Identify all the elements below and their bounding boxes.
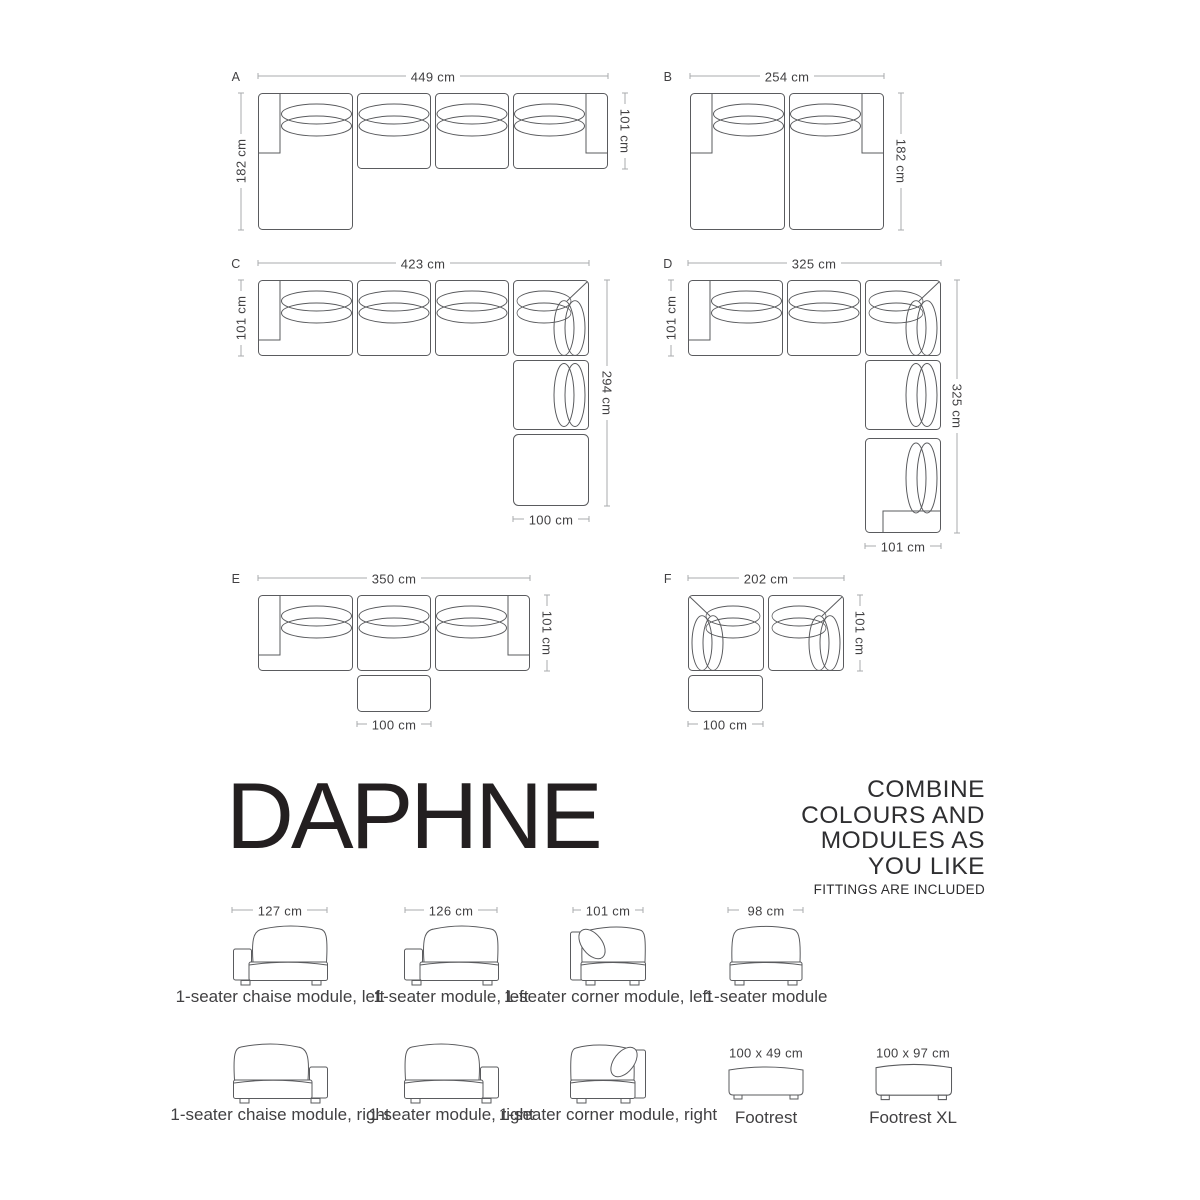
dim-e-width: 350 cm [258,571,530,587]
dim-c-left: 101 cm [234,280,249,356]
sofa-module [259,281,353,356]
product-title: DAPHNE [226,769,600,863]
dim-footrest-xl: 100 x 97 cm [873,1045,953,1061]
config-f-letter: F [664,572,672,586]
module-drawing [405,1044,499,1103]
svg-text:98 cm: 98 cm [748,904,785,919]
svg-text:101 cm: 101 cm [881,540,925,555]
sofa-module [436,281,509,356]
dim-c-width: 423 cm [258,256,589,272]
svg-text:126 cm: 126 cm [429,904,473,919]
sofa-module [436,94,509,169]
footrest-top-view [358,676,431,712]
svg-text:100 cm: 100 cm [372,718,416,733]
module-thumbnails-row-2: 100 x 49 cm 100 x 97 cm [234,1042,954,1103]
dim-module-2: 126 cm [405,903,497,919]
svg-text:101 cm: 101 cm [234,296,249,340]
configuration-d: D 325 cm 101 cm 325 cm 1 [663,256,964,555]
module-drawing [876,1064,951,1099]
dim-e-bottom: 100 cm [357,717,431,733]
sofa-module [358,94,431,169]
svg-text:182 cm: 182 cm [894,139,909,183]
dim-d-left: 101 cm [664,280,679,356]
spec-drawings: A 449 cm 182 cm 101 cm B [0,0,1200,1200]
dim-module-3: 101 cm [573,903,643,919]
sofa-module [790,94,884,230]
sofa-module [788,281,861,356]
svg-text:101 cm: 101 cm [853,611,868,655]
dim-d-bottom: 101 cm [865,539,941,555]
svg-text:101 cm: 101 cm [664,296,679,340]
config-a-letter: A [232,70,241,84]
module-drawing [571,1042,646,1103]
tagline-line: YOU LIKE [801,854,985,880]
tagline-line: COLOURS AND [801,803,985,829]
module-caption: 1-seater module [656,987,876,1007]
svg-text:101 cm: 101 cm [618,109,633,153]
svg-text:325 cm: 325 cm [792,257,836,272]
svg-text:325 cm: 325 cm [950,384,965,428]
configuration-e: E 350 cm 101 cm 100 cm [232,571,555,733]
dim-module-4: 98 cm [728,903,803,919]
svg-text:101 cm: 101 cm [540,611,555,655]
dim-e-right: 101 cm [540,595,555,671]
sofa-module [436,596,530,671]
dim-c-bottom: 100 cm [513,512,589,528]
dim-module-1: 127 cm [232,903,327,919]
configuration-f: F 202 cm 101 cm 100 cm [664,571,868,733]
tagline-line: MODULES AS [801,828,985,854]
svg-text:100 cm: 100 cm [529,513,573,528]
dim-b-width: 254 cm [690,69,884,85]
dim-b-right: 182 cm [894,93,909,230]
sofa-module [358,596,431,671]
svg-text:423 cm: 423 cm [401,257,445,272]
module-drawing [729,1067,803,1099]
sofa-module [866,281,941,356]
footrest-top-view [514,435,589,506]
svg-text:254 cm: 254 cm [765,70,809,85]
sofa-module [866,439,941,533]
dim-f-width: 202 cm [688,571,844,587]
dim-d-width: 325 cm [688,256,941,272]
dim-f-right: 101 cm [853,595,868,671]
dim-c-right: 294 cm [600,280,615,506]
module-thumbnails-row-1: 127 cm 126 cm 101 cm 98 cm [232,903,803,986]
module-drawing [234,926,328,985]
sofa-module [514,361,589,430]
module-drawing [730,926,802,985]
tagline-line: COMBINE [801,777,985,803]
module-drawing [405,926,499,985]
config-d-letter: D [663,257,673,271]
config-b-letter: B [664,70,673,84]
dim-a-right: 101 cm [618,93,633,169]
sofa-module [514,94,608,169]
configuration-a: A 449 cm 182 cm 101 cm [232,69,633,231]
dim-footrest: 100 x 49 cm [726,1045,806,1061]
svg-text:100 x 97 cm: 100 x 97 cm [876,1046,950,1061]
svg-text:101 cm: 101 cm [586,904,630,919]
svg-text:294 cm: 294 cm [600,371,615,415]
sofa-module [691,94,785,230]
config-c-letter: C [231,257,241,271]
tagline: COMBINE COLOURS AND MODULES AS YOU LIKE [801,777,985,879]
footrest-top-view [689,676,763,712]
sofa-module [866,361,941,430]
sofa-module [259,94,353,230]
sofa-module [769,596,844,671]
configuration-c: C 423 cm 101 cm 294 cm [231,256,614,528]
sofa-module [514,281,589,356]
sofa-module [689,596,764,671]
svg-text:449 cm: 449 cm [411,70,455,85]
module-drawing [571,924,646,985]
svg-text:100 x 49 cm: 100 x 49 cm [729,1046,803,1061]
configuration-b: B 254 cm 182 cm [664,69,909,231]
sofa-module [358,281,431,356]
config-e-letter: E [232,572,241,586]
page: A 449 cm 182 cm 101 cm B [0,0,1200,1200]
svg-text:100 cm: 100 cm [703,718,747,733]
sofa-module [259,596,353,671]
module-caption: Footrest XL [803,1108,1023,1128]
svg-text:182 cm: 182 cm [234,139,249,183]
svg-text:202 cm: 202 cm [744,572,788,587]
module-drawing [234,1044,328,1103]
dim-d-right: 325 cm [950,280,965,533]
dim-f-bottom: 100 cm [688,717,763,733]
svg-text:350 cm: 350 cm [372,572,416,587]
tagline-note: FITTINGS ARE INCLUDED [814,882,985,897]
dim-a-left: 182 cm [234,93,249,230]
dim-a-width: 449 cm [258,69,608,85]
sofa-module [689,281,783,356]
svg-text:127 cm: 127 cm [258,904,302,919]
